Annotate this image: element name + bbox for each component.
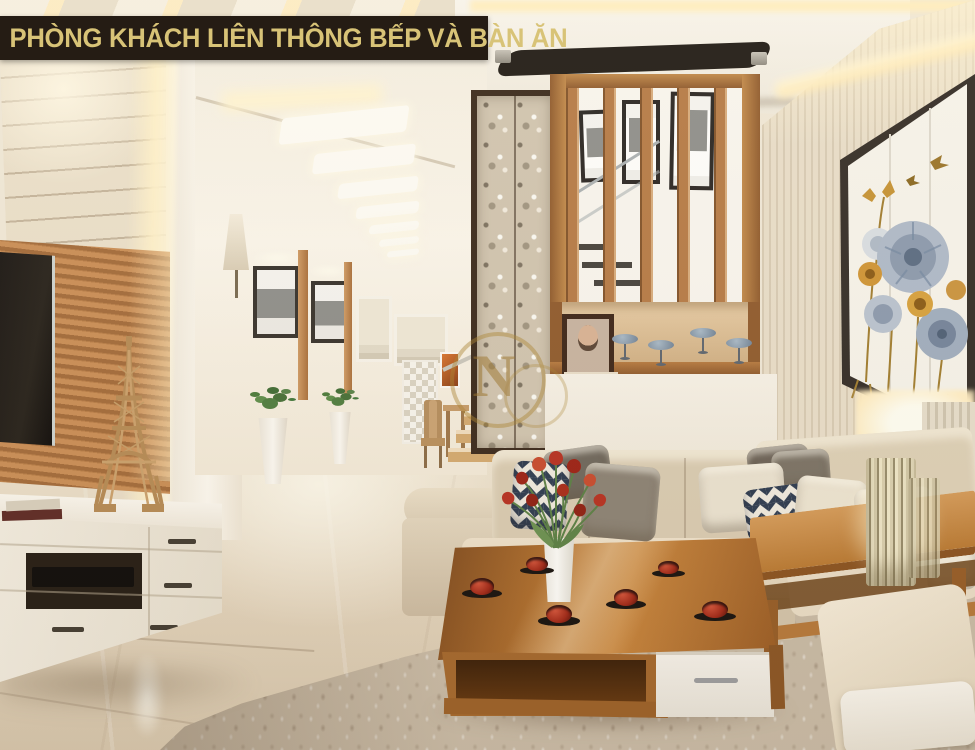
photo-content [257,270,295,334]
drawer-handle [694,678,738,683]
wood-accent-strip [344,262,352,394]
slat-frame-post [742,74,760,310]
wood-accent-strip [298,250,308,400]
serving-bowl [606,583,646,609]
serving-bowl [462,572,502,598]
dining-chair-seat [421,438,445,446]
chair-leg [424,446,427,468]
slat-frame-top [550,74,760,88]
title-banner: PHÒNG KHÁCH LIÊN THÔNG BẾP VÀ BÀN ĂN [0,16,488,60]
chair-leg [439,446,442,468]
potted-plant [332,397,345,406]
drawer-handle [164,583,192,588]
tulip-heads [499,451,608,518]
banner-title: PHÒNG KHÁCH LIÊN THÔNG BẾP VÀ BÀN ĂN [0,23,567,54]
serving-bowl [694,594,736,621]
photo-content [315,285,345,339]
drawer-handle [52,627,84,632]
decor-bowl [612,334,638,360]
framed-photo [253,266,299,338]
portrait-photo [578,325,598,351]
open-shelf [456,660,646,704]
eiffel-tower-model [88,336,170,518]
cove-light [470,0,975,12]
watermark-logo: N [446,330,576,434]
tulip-bouquet [492,444,622,552]
roman-shade-window [356,296,392,362]
decor-bowl [726,338,752,364]
decor-bowl [690,328,716,354]
serving-bowl [538,598,580,626]
crystal-table-lamp [908,478,940,578]
cabinet-shadow [0,664,250,712]
slat-frame-post [550,74,566,310]
watermark-letter: N [450,332,538,420]
decor-bowl [648,340,674,366]
vertical-wood-slats [566,88,742,302]
serving-bowl [520,552,554,574]
potted-plant [262,398,278,409]
serving-bowl [652,556,685,577]
coffee-table-side [769,645,785,709]
cushion-seam [684,458,686,538]
wall-spotlight-glow [250,250,304,266]
white-ottoman [839,680,975,750]
media-player [32,567,134,587]
drawer-seam [0,543,222,553]
dining-chair [424,400,442,442]
ceiling-spotlight [751,52,767,65]
white-drawer [656,652,774,717]
tv-screen [0,252,55,446]
drawer-handle [168,539,196,544]
living-room-photo: N PHÒNG KHÁCH LIÊN THÔNG BẾP VÀ BÀN ĂN [0,0,975,750]
